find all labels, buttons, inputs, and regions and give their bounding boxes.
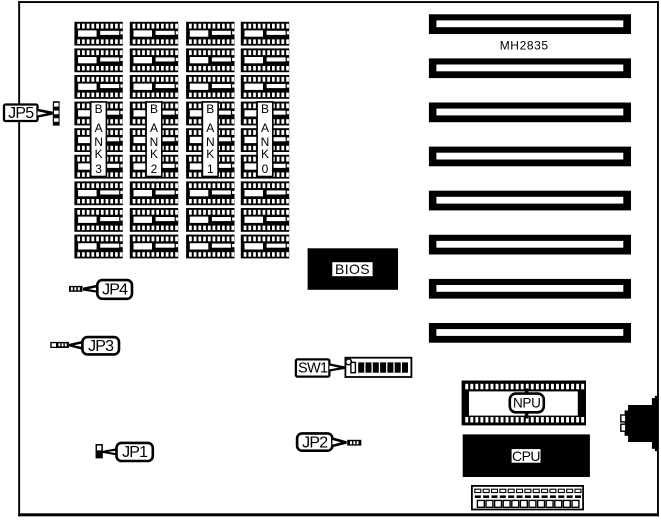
svg-text:A: A — [206, 121, 214, 135]
svg-text:JP1: JP1 — [122, 444, 148, 461]
svg-text:1: 1 — [207, 162, 214, 176]
svg-text:K: K — [206, 147, 214, 161]
svg-text:A: A — [150, 121, 158, 135]
svg-text:JP5: JP5 — [8, 105, 34, 122]
svg-text:2: 2 — [151, 162, 158, 176]
svg-text:A: A — [261, 121, 269, 135]
svg-text:JP2: JP2 — [302, 434, 328, 451]
svg-text:CPU: CPU — [512, 448, 540, 464]
svg-text:MH2835: MH2835 — [500, 38, 549, 52]
svg-text:B: B — [95, 102, 103, 116]
svg-text:K: K — [95, 147, 103, 161]
svg-text:A: A — [95, 121, 103, 135]
svg-text:3: 3 — [95, 162, 102, 176]
svg-text:JP4: JP4 — [102, 282, 128, 299]
svg-text:K: K — [261, 147, 269, 161]
svg-text:NPU: NPU — [513, 395, 541, 410]
svg-text:K: K — [150, 147, 158, 161]
svg-text:B: B — [206, 102, 214, 116]
svg-text:SW1: SW1 — [298, 361, 328, 377]
svg-text:BIOS: BIOS — [335, 261, 370, 277]
svg-text:B: B — [150, 102, 158, 116]
svg-text:B: B — [261, 102, 269, 116]
svg-text:0: 0 — [262, 162, 269, 176]
svg-text:JP3: JP3 — [88, 338, 114, 355]
